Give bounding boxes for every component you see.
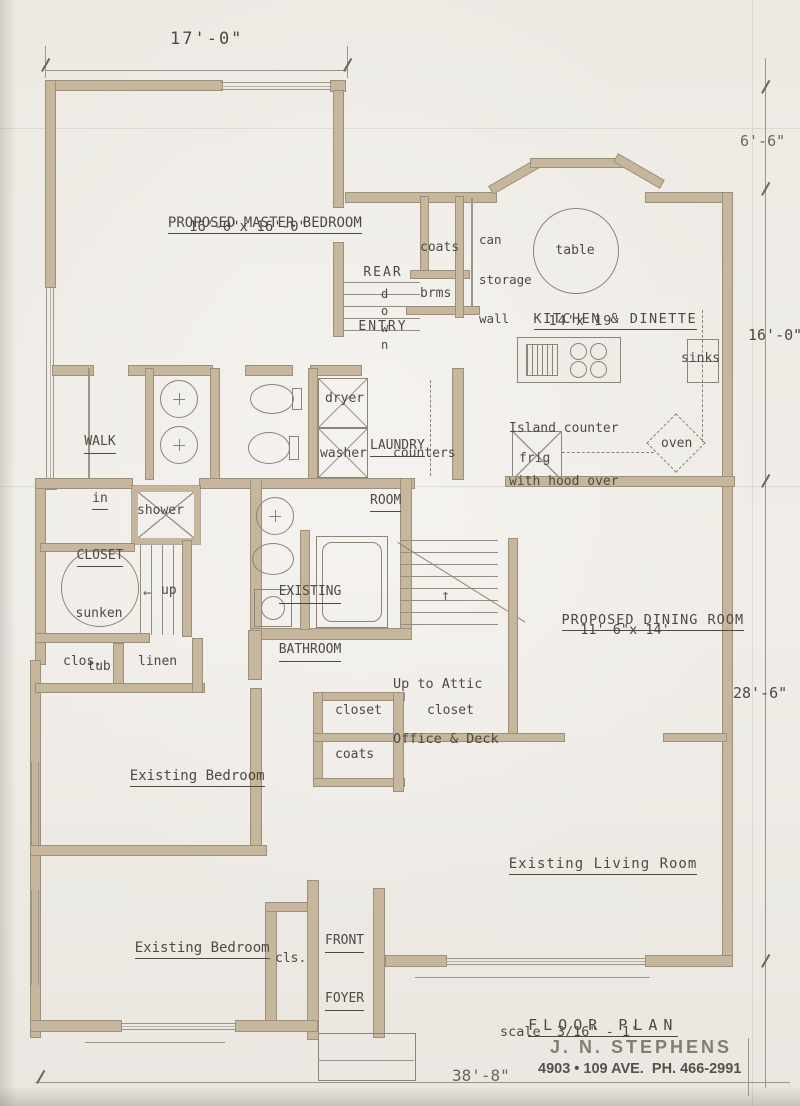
label-coats-front: coats xyxy=(335,747,374,764)
wall-segment xyxy=(245,365,293,376)
label-counters: counters xyxy=(393,446,456,463)
label-table: table xyxy=(533,243,617,260)
paper-crease xyxy=(752,0,753,1106)
wall-segment xyxy=(182,540,192,637)
room-name: Existing Bedroom xyxy=(130,767,265,787)
room-name: Existing Bedroom xyxy=(135,939,270,959)
wall-segment xyxy=(235,1020,318,1032)
burner xyxy=(570,361,587,378)
paper-edge-shadow-bottom xyxy=(0,1086,800,1106)
window xyxy=(46,288,54,478)
label-line: Office & Deck xyxy=(393,730,499,748)
wall-segment xyxy=(333,242,344,337)
toilet-tank xyxy=(292,388,302,410)
room-label-bedroom-lower: Existing Bedroom xyxy=(101,921,270,978)
label-brooms: brms xyxy=(420,286,451,303)
window xyxy=(122,1023,235,1030)
room-name-line: BATHROOM xyxy=(279,641,342,662)
label-refrigerator: frig xyxy=(519,451,550,468)
wall-segment xyxy=(308,368,318,480)
wall-segment xyxy=(420,196,429,274)
burner xyxy=(590,361,607,378)
label-line: can xyxy=(479,233,532,246)
stamp-frame-line xyxy=(748,1038,749,1096)
wall-segment xyxy=(508,538,518,735)
label-closet-hall: closet xyxy=(427,703,474,720)
dimension-line-bottom xyxy=(35,1082,790,1083)
toilet xyxy=(250,384,294,414)
stairs-up-arrow-icon: ↑ xyxy=(441,586,450,606)
wall-segment xyxy=(452,368,464,480)
wall-segment xyxy=(385,955,447,967)
room-size-kitchen: 14'x 19' xyxy=(495,313,675,331)
label-line: Island counter xyxy=(509,420,619,438)
label-cls: cls. xyxy=(275,951,306,968)
wall-segment xyxy=(30,1020,122,1032)
room-name-line: REAR xyxy=(345,265,421,282)
label-coats: coats xyxy=(420,240,459,257)
dimension-right-upper: 6'-6" xyxy=(740,132,785,152)
label-stairs-down: down xyxy=(376,287,392,355)
dimension-bottom-width: 38'-8" xyxy=(452,1066,510,1087)
floor-plan-sheet: 17'-0" 6'-6" 16'-0" 28'-6" 38'-8" xyxy=(0,0,800,1106)
label-shower: shower xyxy=(137,503,184,520)
wall-segment xyxy=(645,192,733,203)
window-sill-line xyxy=(415,977,650,978)
label-dryer: dryer xyxy=(325,391,364,408)
stamp-address: 4903 • 109 AVE. PH. 466-2991 xyxy=(538,1060,741,1079)
room-name-line: CLOSET xyxy=(77,547,124,567)
can-storage-wall-line xyxy=(471,198,473,306)
wall-segment xyxy=(313,778,405,787)
toilet xyxy=(248,432,290,464)
room-name-line: FRONT xyxy=(325,932,364,953)
wall-segment xyxy=(128,365,213,376)
window xyxy=(220,82,332,90)
label-closet-small: closet xyxy=(335,703,382,720)
label-clos: clos. xyxy=(63,654,102,671)
paper-crease xyxy=(0,128,800,129)
bathroom-sink xyxy=(256,497,294,535)
room-name: Existing Living Room xyxy=(509,855,698,875)
wall-segment xyxy=(145,368,154,480)
room-label-bedroom-upper: Existing Bedroom xyxy=(96,749,265,806)
room-label-bathroom: EXISTING BATHROOM xyxy=(268,545,352,700)
wall-segment xyxy=(307,880,319,1040)
front-porch-step-line xyxy=(318,1060,414,1061)
room-name-line: EXISTING xyxy=(279,583,342,604)
label-washer: washer xyxy=(320,446,367,463)
label-line: with hood over xyxy=(509,473,619,491)
room-label-laundry: LAUNDRY ROOM xyxy=(370,404,425,546)
wall-segment xyxy=(30,845,267,856)
wall-segment xyxy=(455,196,464,318)
room-name-line: in xyxy=(92,490,108,510)
room-name-line: ROOM xyxy=(370,493,401,512)
room-label-living: Existing Living Room xyxy=(471,837,697,894)
room-size-master-bedroom: 16'-0"x 16'-0" xyxy=(133,218,363,236)
wall-segment xyxy=(645,955,733,967)
wall-segment xyxy=(333,90,344,208)
label-sunken-tub: sunken tub xyxy=(61,570,137,710)
wall-segment xyxy=(373,888,385,1038)
room-label-foyer: FRONT FOYER xyxy=(325,894,364,1049)
window xyxy=(447,958,645,965)
label-sinks: sinks xyxy=(681,351,720,368)
vanity-sink xyxy=(160,426,198,464)
label-linen: linen xyxy=(138,654,177,671)
label-line: storage xyxy=(479,273,532,286)
dimension-line-right xyxy=(765,58,766,1088)
room-name-line: FOYER xyxy=(325,990,364,1011)
label-up: up xyxy=(161,583,177,600)
dimension-right-lower: 28'-6" xyxy=(733,684,787,704)
bay-window-wall xyxy=(613,153,665,189)
vanity-sink xyxy=(160,380,198,418)
paper-edge-shadow-left xyxy=(0,0,16,1106)
wall-segment xyxy=(45,80,56,288)
dimension-top-width: 17'-0" xyxy=(170,28,243,50)
counter-edge xyxy=(702,310,703,442)
wall-segment xyxy=(192,638,203,693)
bay-window-wall xyxy=(530,158,625,168)
stamp-name: J. N. STEPHENS xyxy=(550,1036,732,1059)
window xyxy=(31,890,39,985)
wall-segment xyxy=(199,478,255,489)
label-line: Up to Attic xyxy=(393,675,499,693)
dimension-line-top xyxy=(45,70,348,71)
wall-segment xyxy=(722,192,733,967)
toilet-tank xyxy=(289,436,299,460)
label-line: sunken xyxy=(61,605,137,623)
wall-segment xyxy=(45,80,223,91)
window xyxy=(31,762,39,847)
wall-segment xyxy=(663,733,727,742)
label-oven: oven xyxy=(661,436,692,453)
up-arrow-icon: ← xyxy=(143,584,151,602)
room-size-dining: 11'-6"x 14' xyxy=(525,622,725,640)
wall-segment xyxy=(248,630,262,680)
dimension-right-mid: 16'-0" xyxy=(748,326,800,346)
wall-segment xyxy=(210,368,220,480)
window-sill-line xyxy=(85,1042,225,1043)
room-name-line: WALK xyxy=(84,433,115,453)
